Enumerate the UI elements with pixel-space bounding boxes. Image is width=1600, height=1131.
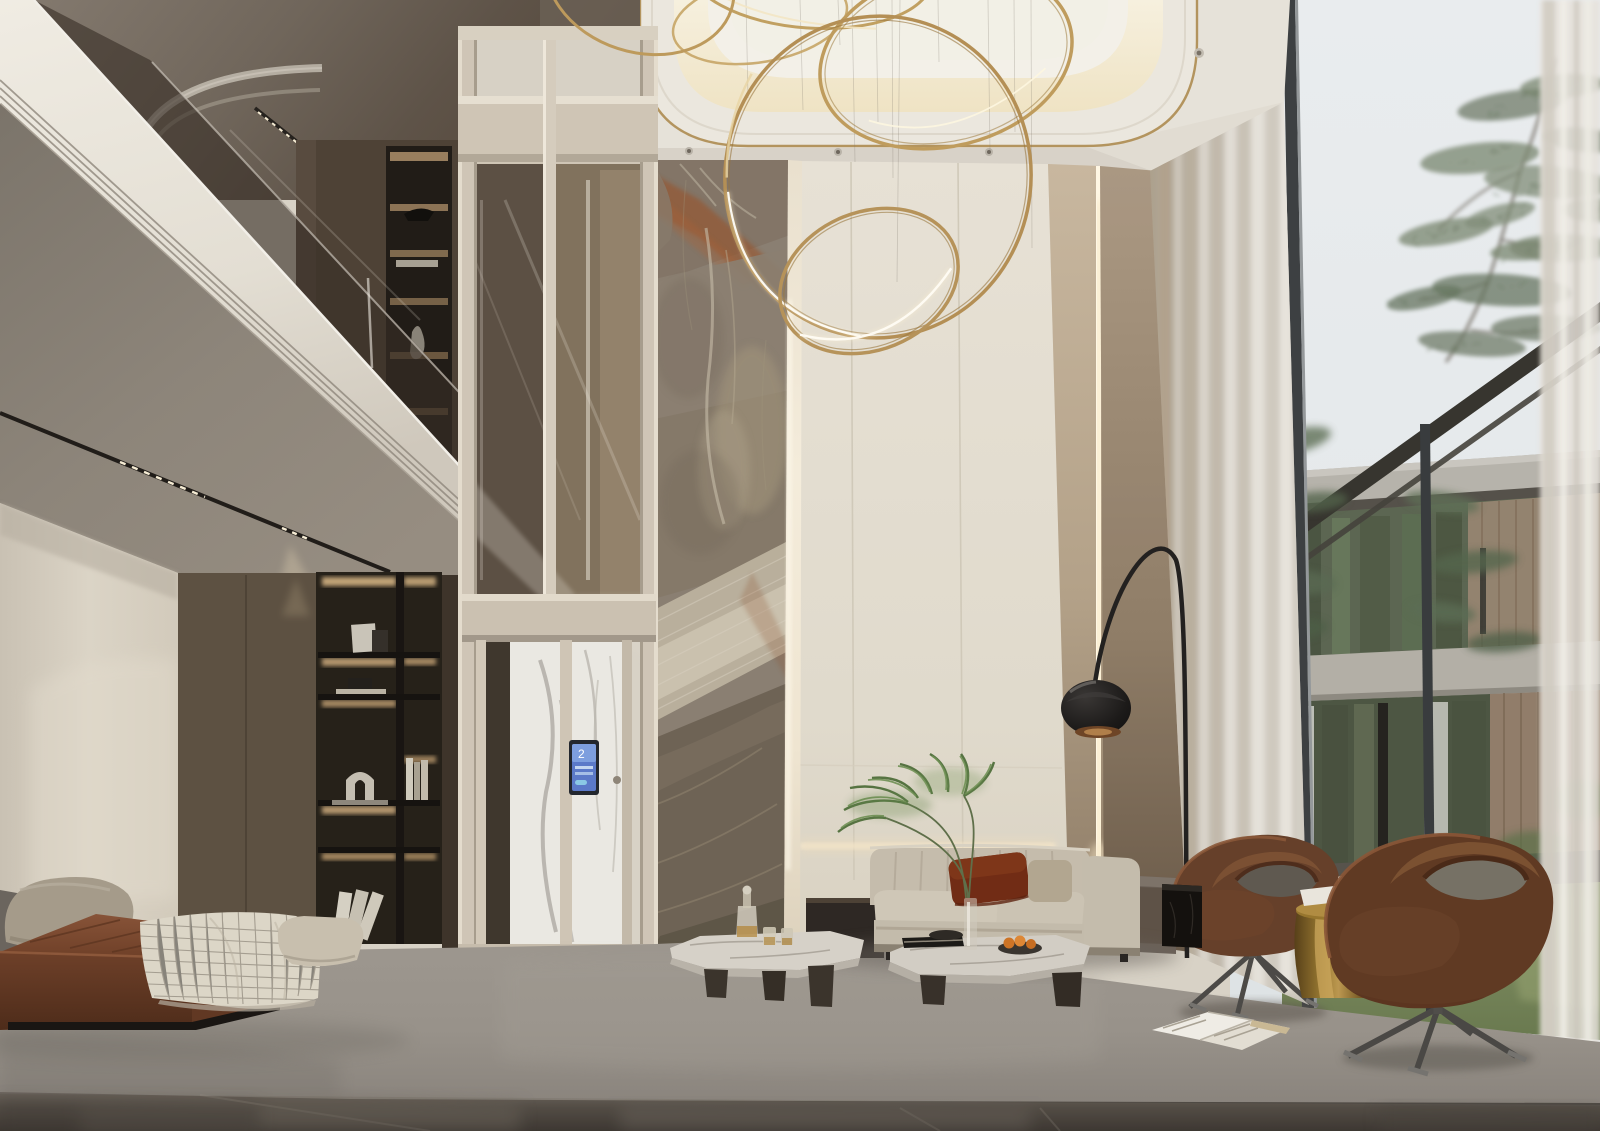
svg-text:2: 2 [578,747,585,761]
